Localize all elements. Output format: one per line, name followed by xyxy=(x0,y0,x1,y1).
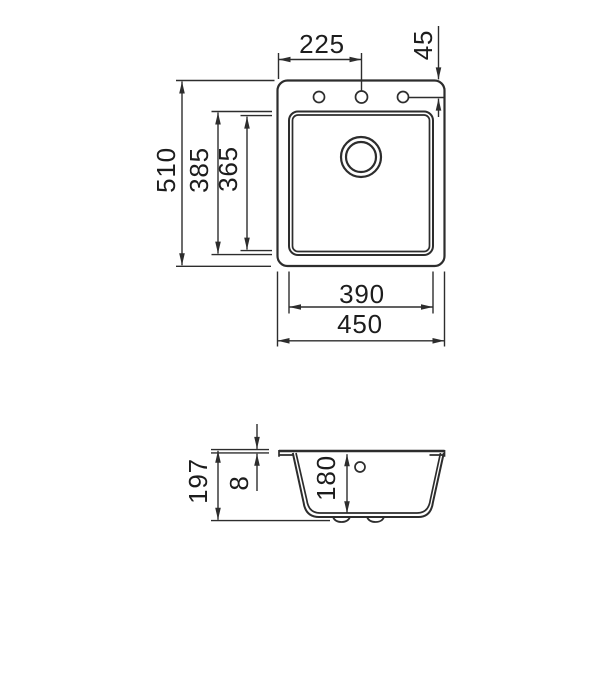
sink-drawing-svg xyxy=(0,0,600,689)
sink-outline xyxy=(278,81,445,267)
overflow-hole xyxy=(355,462,365,472)
drain-inner-ring xyxy=(346,142,376,172)
dim-label-hole-inset: 45 xyxy=(410,30,436,61)
sink-technical-drawing: 225 45 510 385 365 390 450 197 8 180 xyxy=(0,0,600,689)
bowl-inner-outline xyxy=(293,115,430,252)
dim-label-bowl-outer-length: 385 xyxy=(186,147,212,193)
dim-label-overall-length: 510 xyxy=(153,147,179,193)
faucet-hole-right xyxy=(398,92,409,103)
dim-label-rim-height: 8 xyxy=(226,475,252,490)
faucet-hole-center xyxy=(356,91,368,103)
bowl-outer-outline xyxy=(289,112,433,256)
dim-label-faucet-offset: 225 xyxy=(299,31,345,57)
faucet-hole-left xyxy=(314,92,325,103)
dim-label-overall-height: 197 xyxy=(185,458,211,504)
dim-label-overall-width: 450 xyxy=(337,311,383,337)
dim-label-bowl-width: 390 xyxy=(339,281,385,307)
dim-label-bowl-inner-length: 365 xyxy=(215,146,241,192)
dim-bowl-inner-length-geometry xyxy=(241,116,273,251)
dim-label-bowl-depth: 180 xyxy=(313,455,339,501)
